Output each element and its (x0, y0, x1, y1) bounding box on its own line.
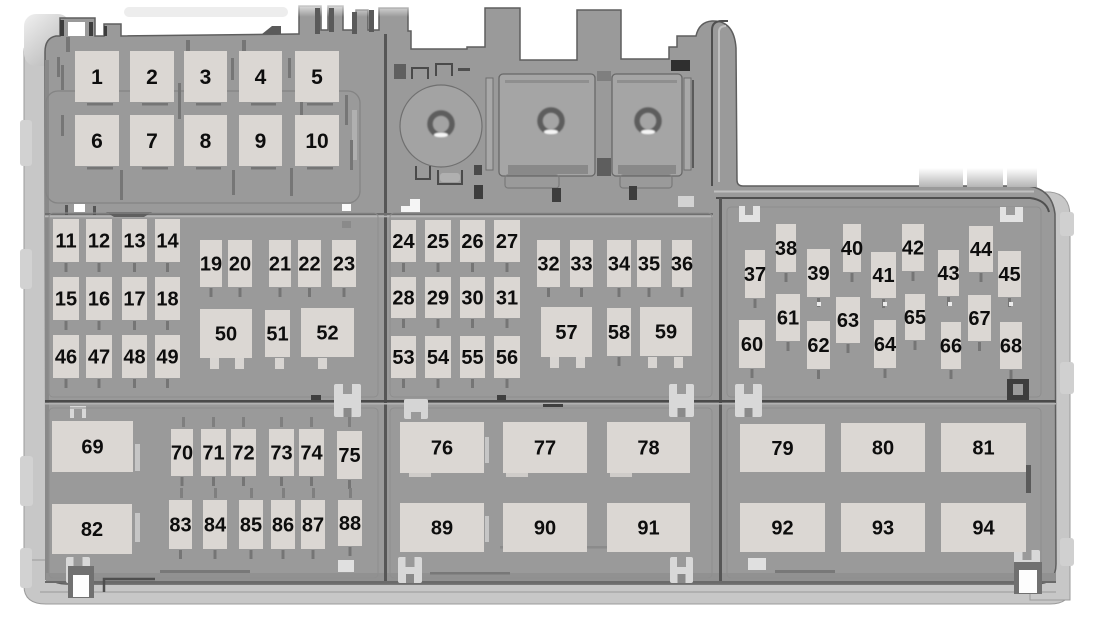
svg-text:36: 36 (671, 254, 693, 276)
svg-text:81: 81 (972, 438, 994, 460)
svg-text:35: 35 (638, 254, 660, 276)
svg-text:66: 66 (940, 336, 962, 358)
svg-text:2: 2 (146, 66, 158, 89)
svg-text:58: 58 (608, 322, 630, 344)
svg-text:64: 64 (874, 334, 897, 356)
svg-text:19: 19 (200, 254, 222, 276)
svg-text:62: 62 (807, 335, 829, 357)
svg-text:53: 53 (392, 347, 414, 369)
svg-text:42: 42 (902, 238, 924, 260)
svg-text:68: 68 (1000, 336, 1022, 358)
svg-text:55: 55 (461, 347, 483, 369)
svg-text:92: 92 (771, 518, 793, 540)
svg-text:70: 70 (171, 443, 193, 465)
svg-text:24: 24 (392, 231, 415, 253)
svg-text:4: 4 (255, 66, 267, 89)
svg-text:60: 60 (741, 334, 763, 356)
svg-text:94: 94 (972, 518, 995, 540)
svg-text:61: 61 (777, 308, 799, 330)
svg-text:79: 79 (771, 438, 793, 460)
svg-text:72: 72 (232, 443, 254, 465)
svg-text:48: 48 (123, 347, 145, 369)
svg-text:34: 34 (608, 254, 631, 276)
svg-text:5: 5 (311, 66, 323, 89)
svg-text:67: 67 (968, 308, 990, 330)
svg-text:6: 6 (91, 130, 103, 153)
svg-text:80: 80 (872, 438, 894, 460)
svg-text:11: 11 (55, 231, 76, 253)
svg-text:43: 43 (937, 263, 959, 285)
svg-text:1: 1 (91, 66, 103, 89)
svg-text:86: 86 (272, 515, 294, 537)
svg-text:10: 10 (305, 130, 328, 153)
svg-text:90: 90 (534, 518, 556, 540)
svg-text:76: 76 (431, 438, 453, 460)
svg-text:75: 75 (338, 445, 360, 467)
svg-text:44: 44 (970, 239, 993, 261)
svg-text:50: 50 (215, 324, 237, 346)
svg-text:21: 21 (269, 254, 291, 276)
svg-text:77: 77 (534, 438, 556, 460)
svg-text:18: 18 (156, 289, 178, 311)
svg-text:87: 87 (302, 515, 324, 537)
svg-text:20: 20 (229, 254, 251, 276)
svg-text:13: 13 (123, 231, 145, 253)
svg-text:16: 16 (88, 289, 110, 311)
svg-text:84: 84 (204, 515, 227, 537)
svg-text:30: 30 (461, 288, 483, 310)
svg-text:14: 14 (156, 231, 179, 253)
svg-text:27: 27 (496, 231, 518, 253)
svg-text:85: 85 (240, 515, 262, 537)
svg-text:41: 41 (872, 265, 894, 287)
svg-text:78: 78 (637, 438, 659, 460)
svg-text:31: 31 (496, 288, 518, 310)
svg-text:3: 3 (200, 66, 212, 89)
svg-text:46: 46 (55, 347, 77, 369)
svg-text:37: 37 (744, 264, 766, 286)
svg-text:45: 45 (998, 264, 1020, 286)
svg-text:7: 7 (146, 130, 158, 153)
svg-text:25: 25 (427, 231, 449, 253)
svg-text:47: 47 (88, 347, 110, 369)
svg-text:73: 73 (270, 443, 292, 465)
svg-text:89: 89 (431, 518, 453, 540)
svg-text:59: 59 (655, 322, 677, 344)
svg-text:29: 29 (427, 288, 449, 310)
svg-text:40: 40 (841, 238, 863, 260)
svg-text:12: 12 (88, 231, 110, 253)
svg-text:22: 22 (298, 254, 320, 276)
svg-text:71: 71 (202, 443, 224, 465)
svg-text:17: 17 (123, 289, 145, 311)
svg-text:9: 9 (255, 130, 267, 153)
svg-text:88: 88 (339, 513, 361, 535)
svg-text:8: 8 (200, 130, 212, 153)
svg-text:82: 82 (81, 519, 103, 541)
svg-text:39: 39 (807, 263, 829, 285)
svg-text:26: 26 (461, 231, 483, 253)
svg-text:56: 56 (496, 347, 518, 369)
svg-text:51: 51 (266, 324, 288, 346)
svg-text:63: 63 (837, 310, 859, 332)
svg-text:54: 54 (427, 347, 450, 369)
svg-text:15: 15 (55, 289, 77, 311)
svg-text:23: 23 (333, 254, 355, 276)
svg-text:49: 49 (156, 347, 178, 369)
svg-text:91: 91 (637, 518, 659, 540)
svg-text:33: 33 (570, 254, 592, 276)
svg-text:32: 32 (537, 254, 559, 276)
svg-text:38: 38 (775, 238, 797, 260)
svg-text:65: 65 (904, 307, 926, 329)
svg-text:52: 52 (316, 323, 338, 345)
svg-text:69: 69 (81, 437, 103, 459)
svg-text:57: 57 (555, 322, 577, 344)
svg-text:93: 93 (872, 518, 894, 540)
svg-text:74: 74 (300, 443, 323, 465)
svg-text:28: 28 (392, 288, 414, 310)
svg-text:83: 83 (169, 515, 191, 537)
